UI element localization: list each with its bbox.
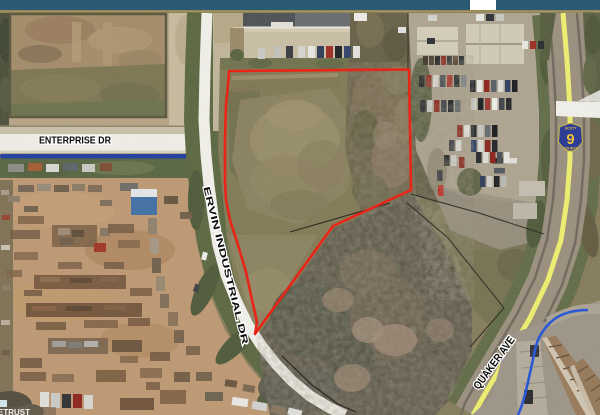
- svg-text:ETRUST: ETRUST: [0, 408, 30, 415]
- svg-text:ENTERPRISE DR: ENTERPRISE DR: [39, 136, 112, 147]
- svg-text:SCOTT: SCOTT: [565, 127, 577, 131]
- svg-text:COUNTY: COUNTY: [563, 146, 578, 150]
